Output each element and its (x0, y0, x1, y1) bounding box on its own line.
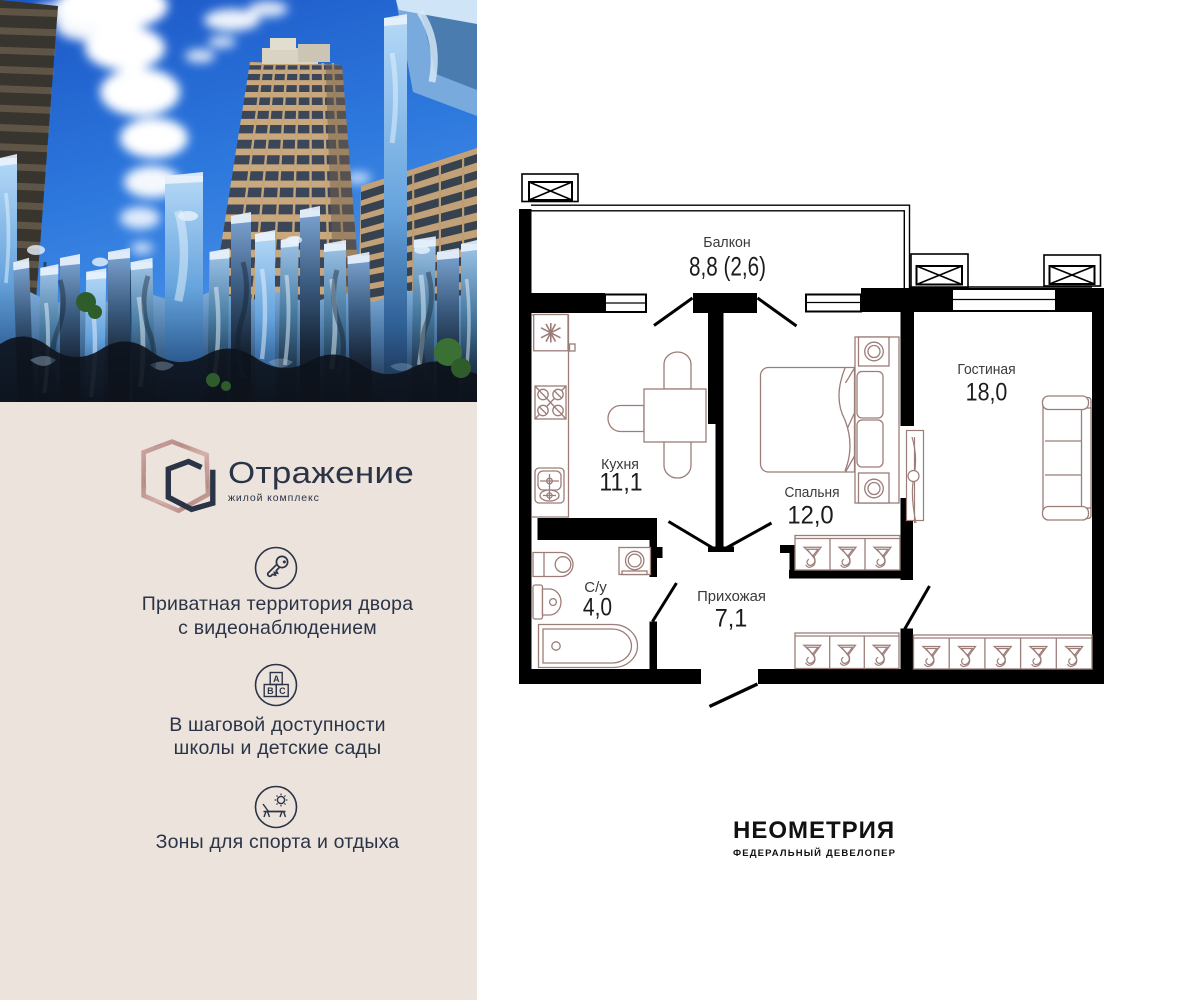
svg-text:4,0: 4,0 (583, 593, 612, 621)
svg-text:Прихожая: Прихожая (697, 588, 766, 605)
svg-text:11,1: 11,1 (599, 469, 642, 497)
svg-text:8,8 (2,6): 8,8 (2,6) (689, 252, 766, 282)
svg-text:Спальня: Спальня (784, 484, 839, 501)
svg-text:12,0: 12,0 (787, 502, 833, 530)
svg-text:18,0: 18,0 (966, 378, 1008, 406)
svg-text:7,1: 7,1 (715, 605, 748, 633)
svg-text:Балкон: Балкон (703, 235, 750, 251)
svg-text:Гостиная: Гостиная (957, 362, 1015, 379)
